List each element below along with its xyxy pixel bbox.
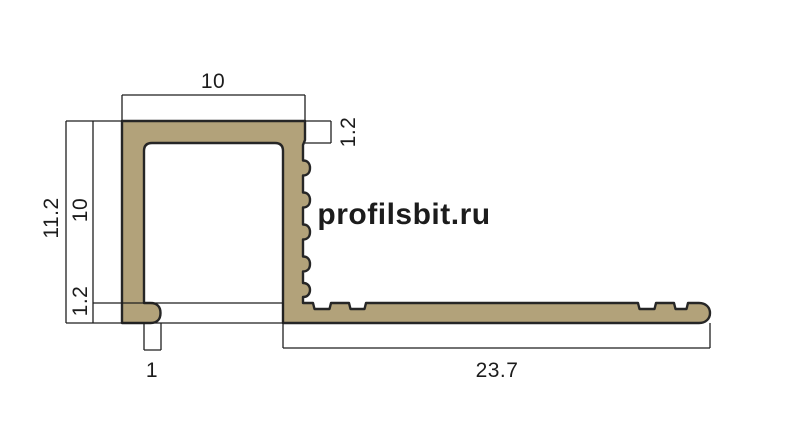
label-base-length: 23.7	[476, 359, 519, 382]
label-foot-width: 1	[146, 359, 158, 382]
label-total-height: 11.2	[40, 197, 63, 238]
label-top-width: 10	[201, 70, 225, 93]
profile-drawing-svg: profilsbit.ru	[0, 0, 800, 424]
technical-drawing-canvas: profilsbit.ru	[0, 0, 800, 424]
label-top-wall-thickness: 1.2	[337, 117, 360, 148]
label-inner-height: 10	[69, 198, 92, 222]
watermark-text: profilsbit.ru	[317, 198, 490, 231]
label-base-thickness: 1.2	[69, 286, 92, 317]
